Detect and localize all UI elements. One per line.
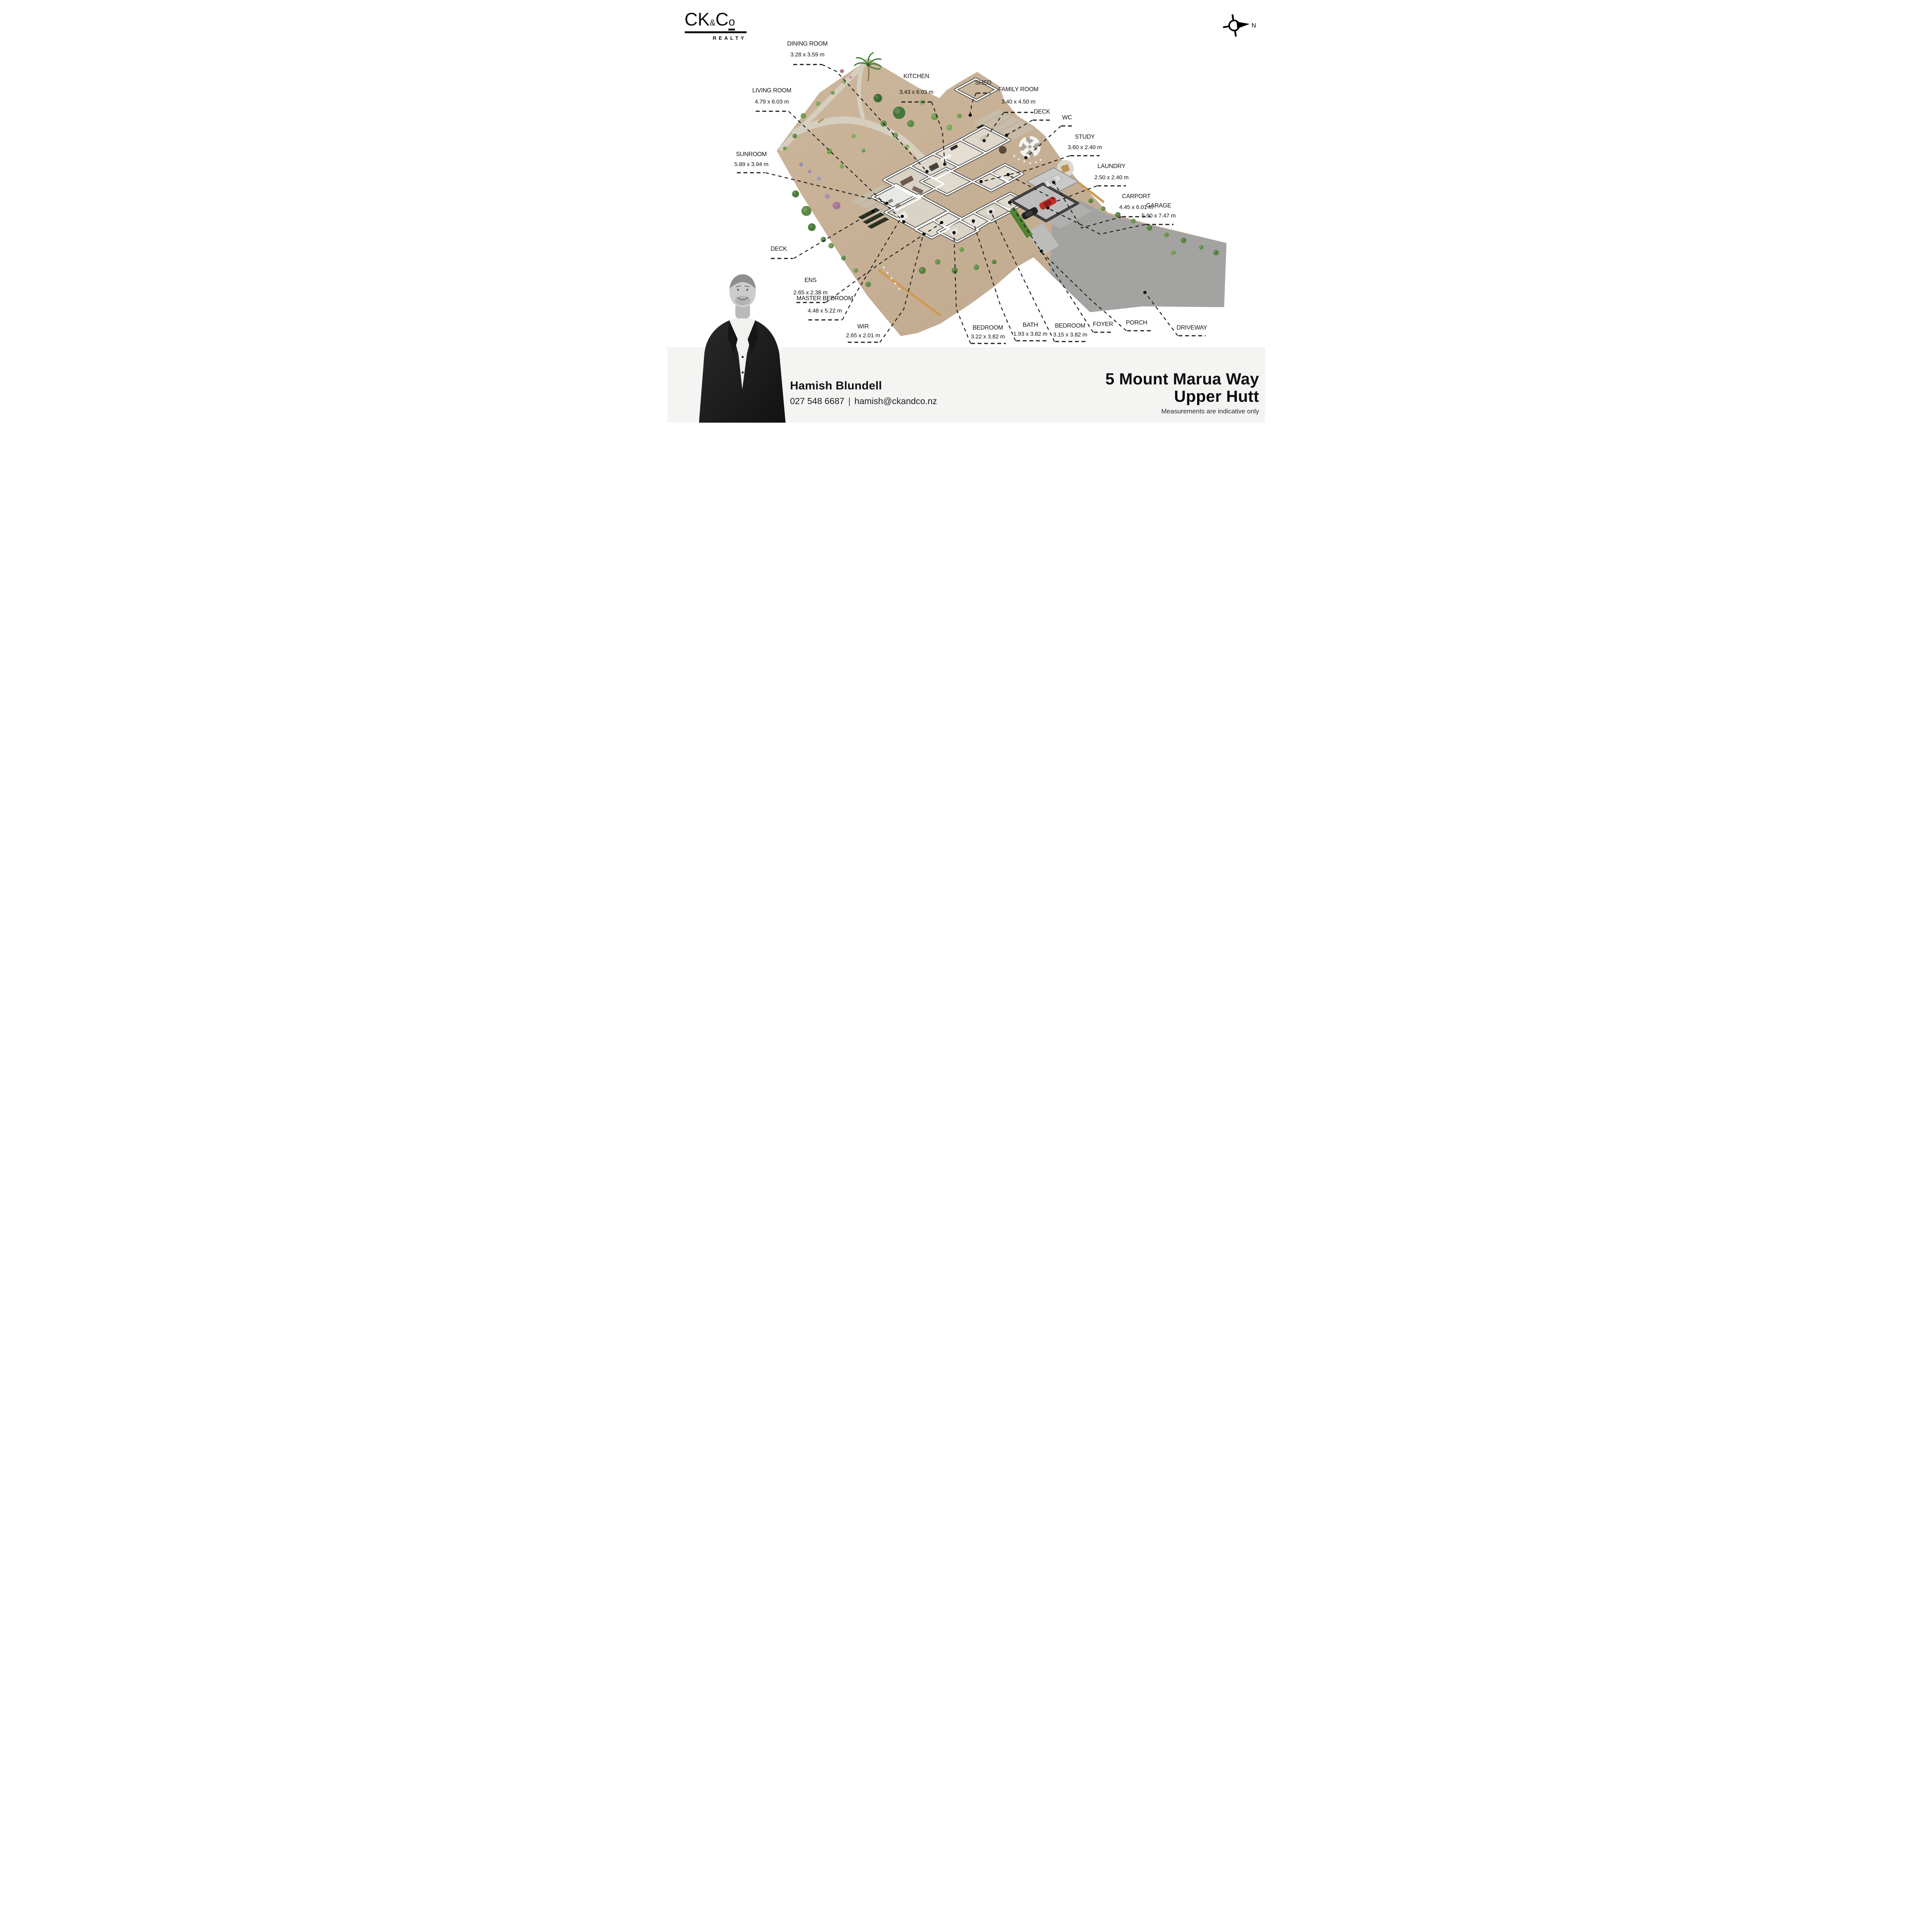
property-address: 5 Mount Marua Way Upper Hutt Measurement… — [1105, 370, 1259, 415]
brand-logo-text: CK&Co — [685, 10, 750, 28]
room-dot-study — [979, 180, 983, 184]
room-dot-carport — [1052, 181, 1055, 184]
room-dot-kitchen — [943, 163, 946, 166]
room-dot-garage — [1046, 206, 1049, 210]
ampersand: & — [710, 18, 716, 27]
stepping-stone — [1018, 158, 1020, 160]
stepping-stone — [1039, 159, 1041, 161]
agent-name: Hamish Blundell — [790, 379, 937, 393]
room-dot-deck-north — [1005, 134, 1008, 137]
room-dot-driveway — [1143, 291, 1146, 294]
stepping-stone — [886, 272, 888, 274]
room-dot-dining-room — [925, 170, 929, 173]
agent-portrait-illustration — [699, 274, 786, 423]
agent-phone: 027 548 6687 — [790, 396, 845, 406]
stepping-stone — [1013, 155, 1015, 157]
measurements-disclaimer: Measurements are indicative only — [1105, 408, 1259, 415]
driveway-surface — [1027, 200, 1226, 312]
address-line-2: Upper Hutt — [1105, 387, 1259, 405]
room-dot-wc — [1024, 156, 1027, 160]
stepping-stone — [894, 282, 896, 284]
room-dot-laundry — [1006, 173, 1010, 177]
logo-rule — [685, 31, 747, 33]
room-dot-deck-west — [871, 210, 874, 213]
room-dot-family-room — [982, 139, 986, 143]
contact-separator: | — [848, 396, 850, 406]
compass-north-indicator: N — [1223, 13, 1258, 38]
agent-contact: 027 548 6687|hamish@ckandco.nz — [790, 396, 937, 406]
agent-photo — [684, 262, 789, 423]
stepping-stone — [890, 277, 892, 279]
stepping-stone — [883, 266, 884, 268]
room-dot-sunroom — [885, 202, 888, 205]
stepping-stone — [1029, 162, 1031, 164]
compass-n-label: N — [1252, 22, 1256, 29]
room-dot-bedroom-1 — [952, 231, 956, 235]
north-arrow-icon — [1236, 22, 1250, 29]
room-dot-foyer — [1008, 201, 1011, 204]
patio-umbrella — [999, 146, 1007, 154]
brand-logo: CK&Co REALTY — [685, 10, 750, 41]
agent-email[interactable]: hamish@ckandco.nz — [854, 396, 937, 406]
room-dot-wir — [922, 233, 925, 236]
stepping-stone — [1035, 161, 1037, 163]
room-dot-living-room — [902, 220, 905, 224]
agent-info: Hamish Blundell 027 548 6687|hamish@ckan… — [790, 379, 937, 406]
logo-underlined-o: o — [728, 15, 735, 31]
room-dot-bath — [971, 219, 975, 223]
address-line-1: 5 Mount Marua Way — [1105, 370, 1259, 387]
floor-plan-brochure: CK&Co REALTY N — [667, 0, 1265, 423]
room-dot-bedroom-2 — [989, 210, 992, 214]
room-dot-shed — [968, 114, 972, 117]
room-dot-porch — [1039, 250, 1043, 253]
stepping-stone — [1023, 160, 1025, 162]
stepping-stone — [898, 288, 900, 290]
logo-subtitle: REALTY — [685, 35, 747, 41]
wc-garden-structure — [1020, 138, 1039, 156]
room-dot-ens — [940, 221, 943, 224]
room-dot-master-bedroom — [900, 215, 904, 218]
